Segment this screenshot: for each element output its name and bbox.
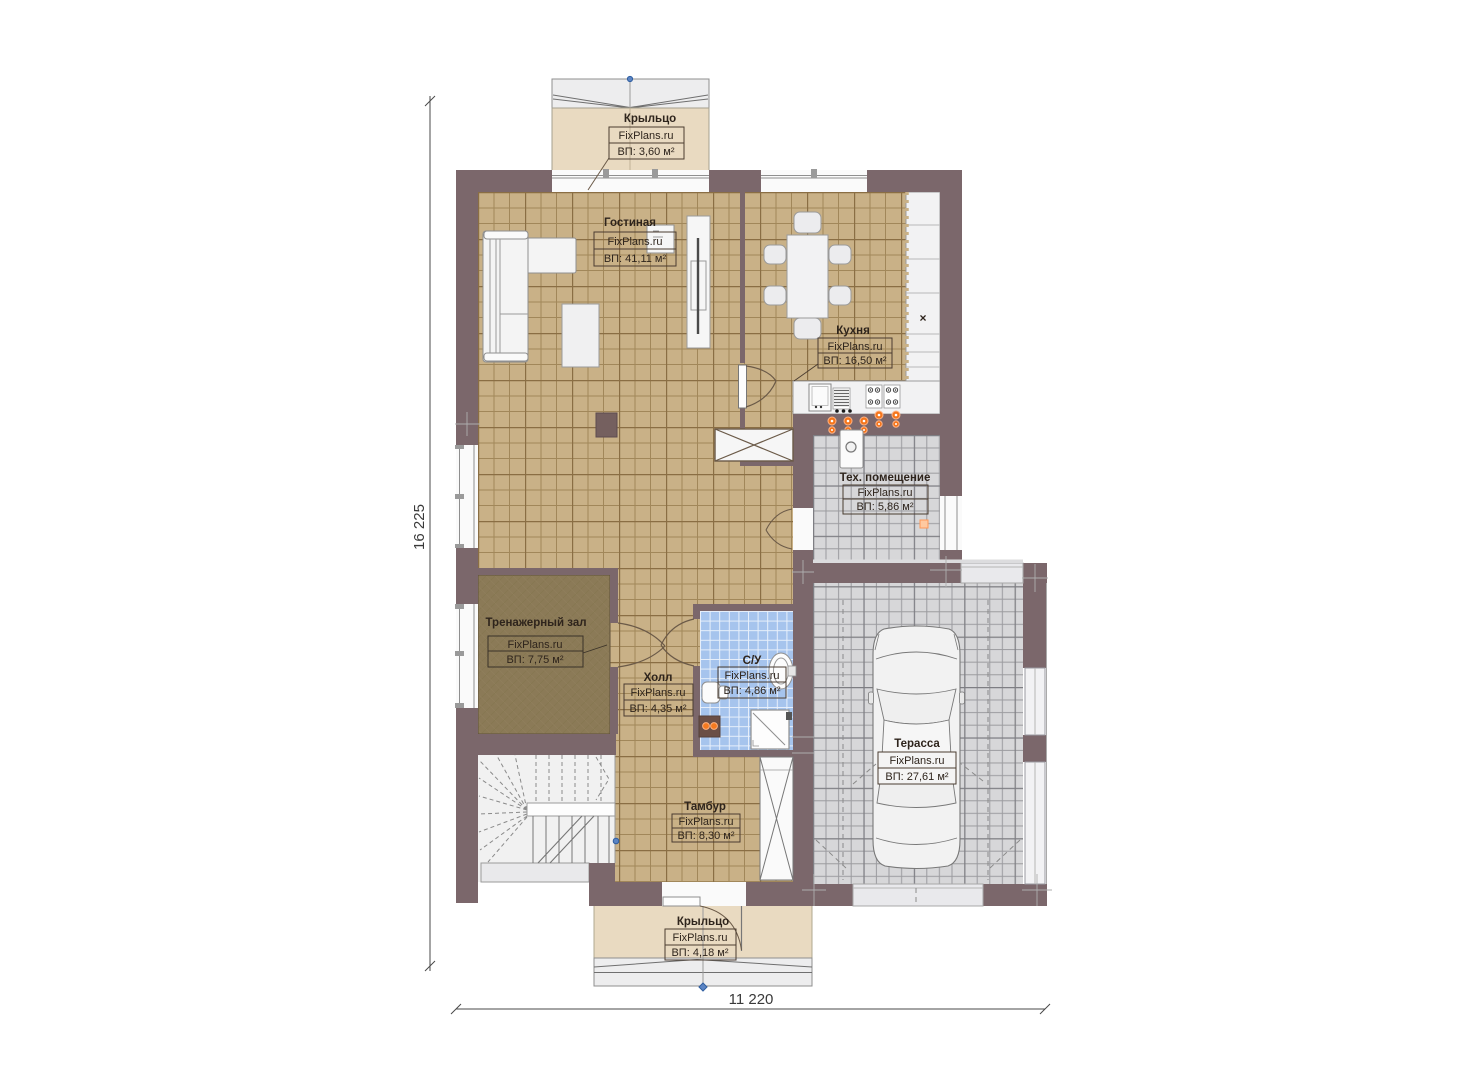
svg-text:11 220: 11 220 [729,991,774,1008]
svg-text:ВП: 4,86 м²: ВП: 4,86 м² [723,685,780,697]
svg-text:Тренажерный зал: Тренажерный зал [485,617,586,629]
svg-text:FixPlans.ru: FixPlans.ru [857,487,912,499]
svg-text:FixPlans.ru: FixPlans.ru [607,236,662,248]
svg-text:Тех. помещение: Тех. помещение [840,472,931,484]
svg-text:Холл: Холл [644,672,673,684]
svg-text:FixPlans.ru: FixPlans.ru [507,639,562,651]
svg-text:ВП: 4,35 м²: ВП: 4,35 м² [629,703,686,715]
svg-text:FixPlans.ru: FixPlans.ru [724,670,779,682]
svg-text:ВП: 16,50 м²: ВП: 16,50 м² [823,355,887,367]
svg-text:Крыльцо: Крыльцо [677,916,729,928]
svg-text:ВП: 27,61 м²: ВП: 27,61 м² [885,771,949,783]
svg-text:FixPlans.ru: FixPlans.ru [672,932,727,944]
svg-text:Тамбур: Тамбур [684,801,726,813]
svg-text:16 225: 16 225 [411,504,428,550]
svg-text:FixPlans.ru: FixPlans.ru [889,755,944,767]
svg-text:ВП: 4,18 м²: ВП: 4,18 м² [671,947,728,959]
svg-text:×: × [919,311,926,325]
svg-text:FixPlans.ru: FixPlans.ru [678,816,733,828]
svg-text:Крыльцо: Крыльцо [624,113,676,125]
svg-text:Кухня: Кухня [836,325,870,337]
svg-text:Терасса: Терасса [894,738,940,750]
svg-text:ВП: 41,11 м²: ВП: 41,11 м² [604,253,667,265]
svg-text:ВП: 8,30 м²: ВП: 8,30 м² [677,830,734,842]
svg-text:С/У: С/У [743,655,763,667]
svg-text:FixPlans.ru: FixPlans.ru [618,130,673,142]
svg-text:FixPlans.ru: FixPlans.ru [827,341,882,353]
svg-text:FixPlans.ru: FixPlans.ru [630,687,685,699]
svg-text:ВП: 5,86 м²: ВП: 5,86 м² [856,501,913,513]
svg-text:Гостиная: Гостиная [604,217,656,229]
svg-text:ВП: 7,75 м²: ВП: 7,75 м² [506,654,563,666]
svg-text:ВП: 3,60 м²: ВП: 3,60 м² [617,146,674,158]
